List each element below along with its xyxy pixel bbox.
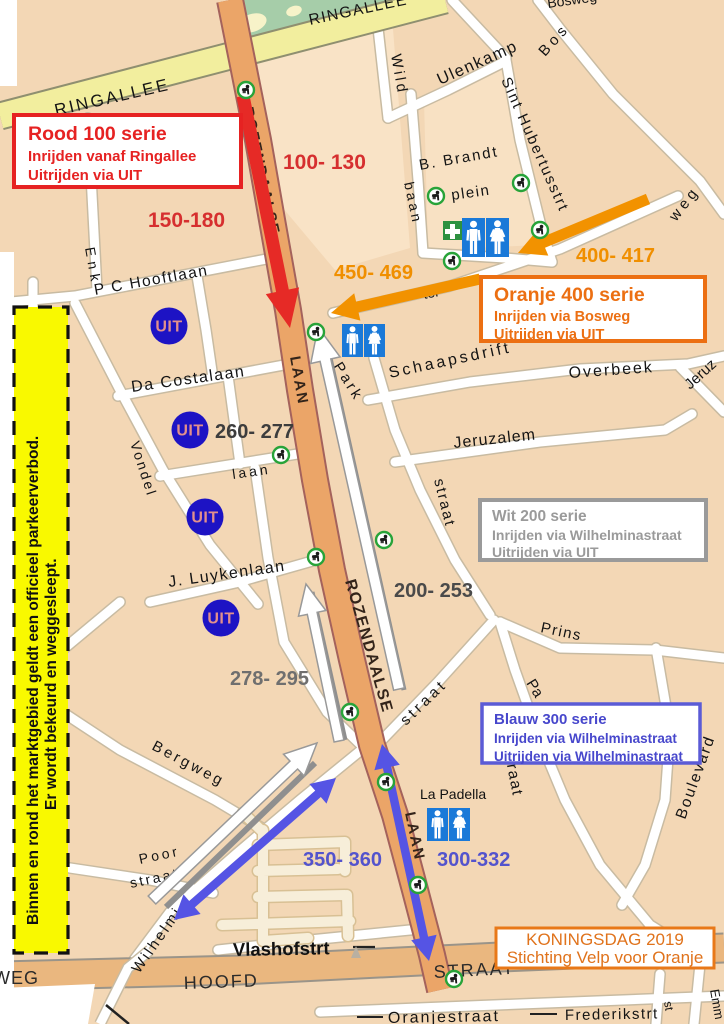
svg-text:Inrijden via Wilhelminastraat: Inrijden via Wilhelminastraat [492, 527, 682, 543]
svg-text:UIT: UIT [207, 611, 234, 628]
svg-text:HOOFD: HOOFD [183, 970, 259, 993]
svg-text:Vlashofstrt: Vlashofstrt [233, 937, 330, 960]
svg-text:La Padella: La Padella [420, 786, 486, 802]
svg-text:Stichting Velp voor Oranje: Stichting Velp voor Oranje [507, 948, 704, 967]
svg-text:Uitrijden via Wilhelminastraat: Uitrijden via Wilhelminastraat [494, 749, 683, 764]
svg-text:Uitrijden via UIT: Uitrijden via UIT [494, 327, 605, 343]
svg-text:450- 469: 450- 469 [334, 262, 413, 284]
svg-text:Blauw 300 serie: Blauw 300 serie [494, 711, 607, 728]
svg-text:UIT: UIT [155, 319, 182, 336]
svg-text:Oranjestraat: Oranjestraat [388, 1008, 500, 1024]
svg-text:Inrijden via Wilhelminastraat: Inrijden via Wilhelminastraat [494, 731, 677, 746]
svg-text:WEG: WEG [0, 968, 39, 988]
svg-text:100- 130: 100- 130 [283, 151, 366, 174]
svg-text:200- 253: 200- 253 [394, 580, 473, 602]
svg-text:Binnen en rond het marktgebied: Binnen en rond het marktgebied geldt een… [25, 436, 42, 925]
svg-text:KONINGSDAG 2019: KONINGSDAG 2019 [526, 930, 684, 949]
svg-text:150-180: 150-180 [148, 209, 225, 232]
svg-text:260- 277: 260- 277 [215, 421, 294, 443]
svg-text:300-332: 300-332 [437, 849, 510, 871]
svg-text:Frederikstrt: Frederikstrt [565, 1005, 659, 1024]
svg-text:Er wordt bekeurd en weggesleep: Er wordt bekeurd en weggesleept. [43, 558, 60, 810]
svg-text:Uitrijden via UIT: Uitrijden via UIT [28, 167, 142, 184]
svg-text:UIT: UIT [191, 510, 218, 527]
svg-text:278- 295: 278- 295 [230, 668, 309, 690]
svg-text:Uitrijden via UIT: Uitrijden via UIT [492, 544, 599, 560]
svg-text:400- 417: 400- 417 [576, 245, 655, 267]
svg-text:Oranje 400 serie: Oranje 400 serie [494, 284, 645, 306]
svg-text:UIT: UIT [176, 423, 203, 440]
svg-text:Rood 100 serie: Rood 100 serie [28, 123, 167, 145]
svg-text:350- 360: 350- 360 [303, 849, 382, 871]
svg-text:Wit 200 serie: Wit 200 serie [492, 508, 587, 525]
svg-text:Inrijden via Bosweg: Inrijden via Bosweg [494, 309, 630, 325]
svg-text:Inrijden vanaf Ringallee: Inrijden vanaf Ringallee [28, 148, 196, 165]
